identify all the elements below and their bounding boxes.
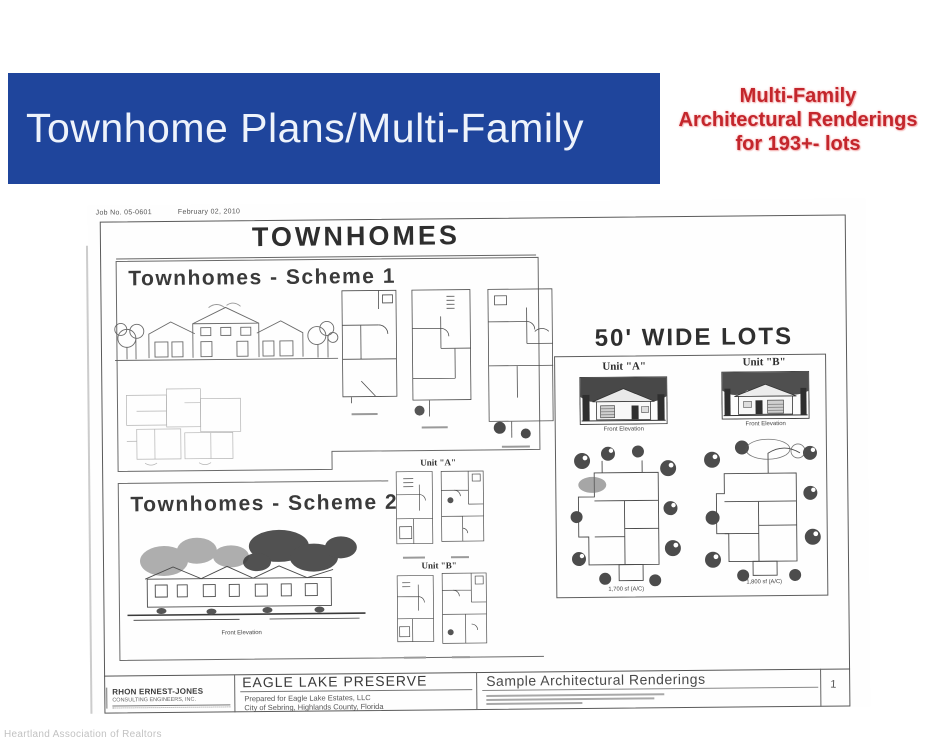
mid-unit-a-plan-2 bbox=[440, 470, 485, 550]
scheme1-title: Townhomes - Scheme 1 bbox=[128, 265, 396, 292]
mid-unit-a-label: Unit "A" bbox=[408, 457, 468, 468]
mid-unit-a-plan-1 bbox=[395, 470, 434, 552]
scheme1-plan1-caption bbox=[352, 413, 378, 415]
scheme1-elevation-sketch bbox=[108, 295, 344, 375]
sheet-fineprint bbox=[486, 693, 664, 707]
callout-line-1: Multi-Family bbox=[662, 84, 934, 108]
engineer-subtitle: CONSULTING ENGINEERS, INC. bbox=[112, 696, 230, 703]
scheme1-plan2-caption bbox=[422, 426, 448, 428]
engineer-name: RHON ERNEST-JONES bbox=[112, 686, 230, 696]
callout-line-3: for 193+- lots bbox=[662, 132, 934, 156]
mid-unit-b-caption2 bbox=[452, 656, 470, 658]
watermark-text: Heartland Association of Realtors bbox=[4, 729, 162, 740]
lots-unit-a-siteplan bbox=[562, 440, 685, 587]
scheme1-floorplan-1 bbox=[340, 289, 399, 408]
lots-unit-b-elevation bbox=[721, 371, 809, 420]
lots-unit-b-area: 1,800 sf (A/C) bbox=[729, 579, 799, 586]
scheme1-site-plan-sketch bbox=[114, 380, 260, 473]
mid-unit-b-caption bbox=[404, 657, 426, 659]
scheme1-floorplan-2 bbox=[410, 288, 473, 421]
lots-unit-b-elevation-caption: Front Elevation bbox=[724, 421, 808, 428]
lots-unit-b-label: Unit "B" bbox=[719, 356, 809, 369]
scheme2-elevation-caption: Front Elevation bbox=[192, 630, 292, 637]
project-location: City of Sebring, Highlands County, Flori… bbox=[244, 702, 383, 712]
engineer-logo: RHON ERNEST-JONES CONSULTING ENGINEERS, … bbox=[104, 686, 230, 708]
wide-lots-title: 50' WIDE LOTS bbox=[559, 323, 829, 354]
scheme2-title: Townhomes - Scheme 2 bbox=[130, 491, 398, 518]
scheme1-floorplan-3 bbox=[486, 287, 555, 440]
title-banner: Townhome Plans/Multi-Family bbox=[8, 73, 660, 184]
mid-unit-b-label: Unit "B" bbox=[409, 560, 469, 571]
mid-unit-a-caption bbox=[403, 557, 425, 559]
lots-unit-b-siteplan bbox=[698, 433, 825, 584]
lots-unit-a-elevation-caption: Front Elevation bbox=[582, 426, 666, 433]
callout-line-2: Architectural Renderings bbox=[662, 108, 934, 132]
scanned-plan-sheet: Job No. 05-0601February 02, 2010 TOWNHOM… bbox=[88, 198, 871, 713]
slide: { "colors": { "banner_bg": "#1f459c", "c… bbox=[0, 0, 940, 744]
sheet-name: Sample Architectural Renderings bbox=[486, 671, 706, 689]
lots-unit-a-label: Unit "A" bbox=[579, 360, 669, 373]
scheme2-elevation-sketch bbox=[119, 521, 375, 631]
page-title: Townhome Plans/Multi-Family bbox=[8, 105, 584, 152]
lots-unit-a-area: 1,700 sf (A/C) bbox=[591, 586, 661, 593]
sheet-page-number: 1 bbox=[830, 678, 837, 690]
mid-unit-b-plan-1 bbox=[396, 574, 435, 650]
callout-text: Multi-Family Architectural Renderings fo… bbox=[662, 84, 934, 156]
lots-unit-a-elevation bbox=[579, 376, 667, 425]
mid-unit-a-caption2 bbox=[451, 556, 469, 558]
scheme1-plan3-caption bbox=[502, 446, 530, 448]
project-name: EAGLE LAKE PRESERVE bbox=[242, 672, 472, 690]
mid-unit-b-plan-2 bbox=[441, 572, 488, 652]
